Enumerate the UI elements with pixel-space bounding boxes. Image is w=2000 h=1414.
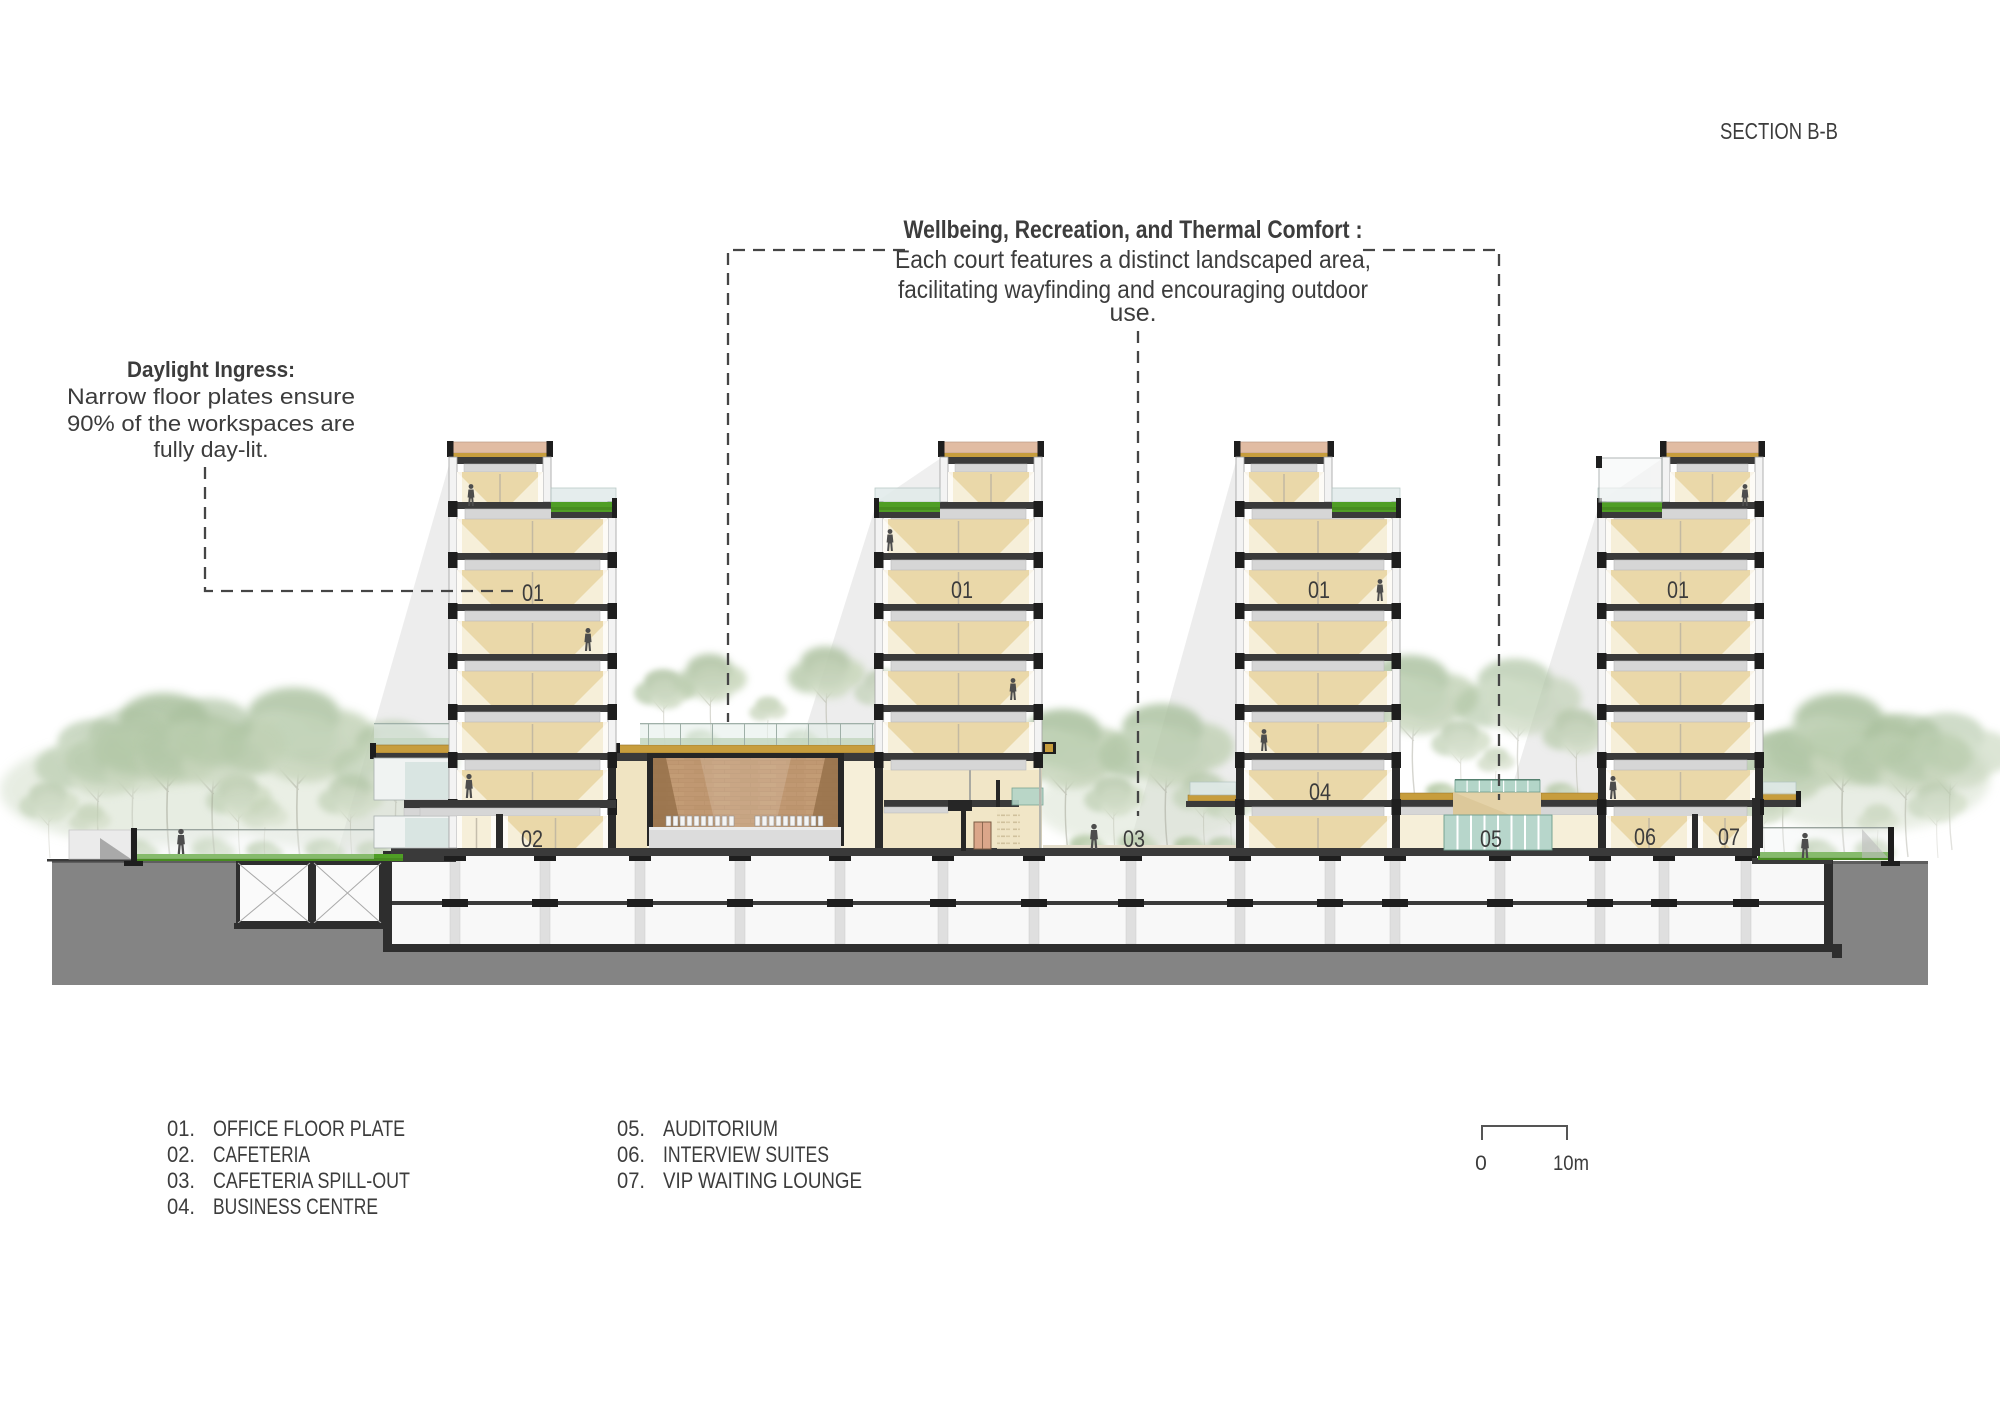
svg-text:CAFETERIA: CAFETERIA xyxy=(213,1142,310,1167)
svg-text:Wellbeing, Recreation, and The: Wellbeing, Recreation, and Thermal Comfo… xyxy=(904,216,1363,244)
svg-text:Narrow floor plates ensure: Narrow floor plates ensure xyxy=(67,384,355,409)
svg-text:04.: 04. xyxy=(167,1194,195,1219)
svg-text:90% of the workspaces are: 90% of the workspaces are xyxy=(67,411,355,436)
svg-text:01: 01 xyxy=(1308,577,1330,604)
svg-text:05.: 05. xyxy=(617,1116,645,1141)
svg-text:INTERVIEW SUITES: INTERVIEW SUITES xyxy=(663,1142,829,1167)
svg-text:VIP WAITING LOUNGE: VIP WAITING LOUNGE xyxy=(663,1168,862,1193)
svg-text:CAFETERIA SPILL-OUT: CAFETERIA SPILL-OUT xyxy=(213,1168,410,1193)
svg-text:fully day-lit.: fully day-lit. xyxy=(154,437,269,462)
svg-text:AUDITORIUM: AUDITORIUM xyxy=(663,1116,778,1141)
svg-text:07.: 07. xyxy=(617,1168,645,1193)
svg-text:use.: use. xyxy=(1110,299,1157,327)
svg-text:01: 01 xyxy=(951,577,973,604)
svg-text:01.: 01. xyxy=(167,1116,195,1141)
svg-text:05: 05 xyxy=(1480,826,1502,853)
svg-text:0: 0 xyxy=(1475,1152,1487,1175)
svg-text:BUSINESS CENTRE: BUSINESS CENTRE xyxy=(213,1194,378,1219)
svg-text:Each court features a distinct: Each court features a distinct landscape… xyxy=(895,246,1371,274)
svg-text:04: 04 xyxy=(1309,779,1331,806)
svg-text:02.: 02. xyxy=(167,1142,195,1167)
svg-text:Daylight Ingress:: Daylight Ingress: xyxy=(127,357,295,382)
svg-text:06: 06 xyxy=(1634,824,1656,851)
svg-text:03: 03 xyxy=(1123,826,1145,853)
svg-text:06.: 06. xyxy=(617,1142,645,1167)
svg-text:07: 07 xyxy=(1718,824,1740,851)
svg-text:SECTION B-B: SECTION B-B xyxy=(1720,118,1838,144)
svg-text:03.: 03. xyxy=(167,1168,195,1193)
svg-text:10m: 10m xyxy=(1553,1152,1589,1175)
svg-text:02: 02 xyxy=(521,826,543,853)
svg-text:OFFICE FLOOR PLATE: OFFICE FLOOR PLATE xyxy=(213,1116,405,1141)
svg-text:01: 01 xyxy=(1667,577,1689,604)
svg-text:01: 01 xyxy=(522,580,544,607)
